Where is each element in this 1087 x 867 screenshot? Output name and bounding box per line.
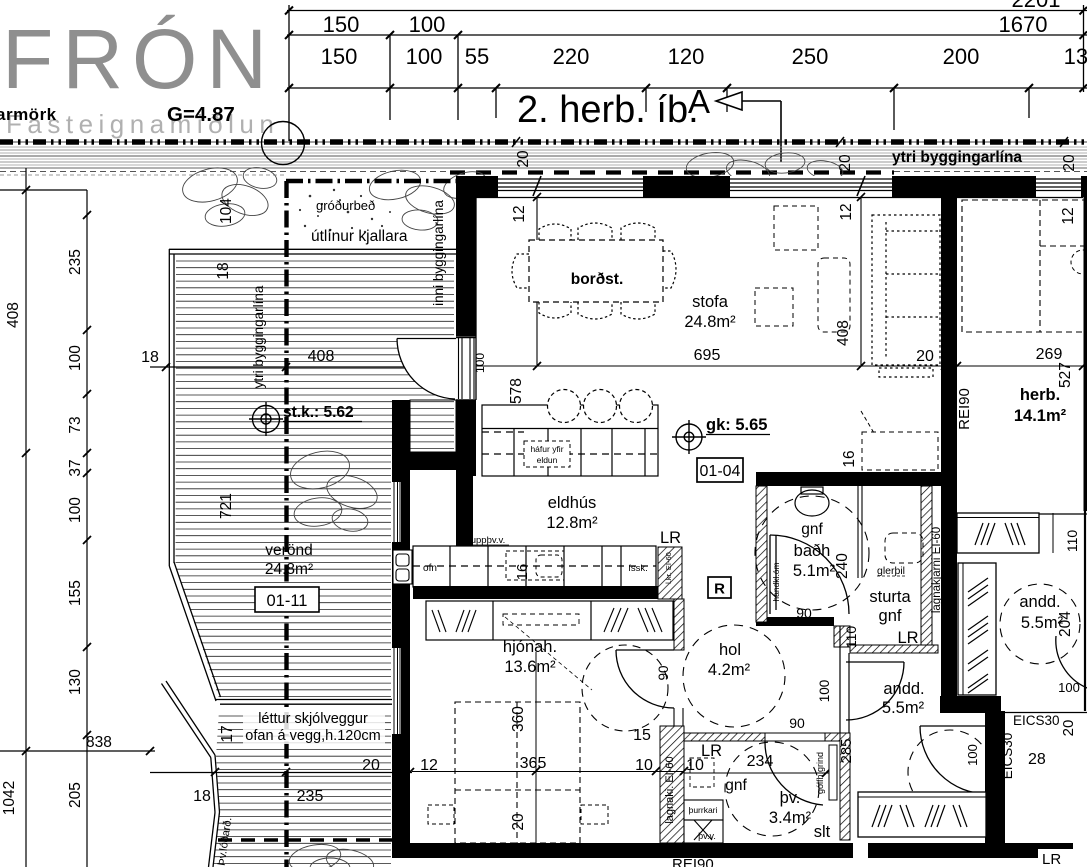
svg-text:17: 17 bbox=[219, 725, 236, 742]
svg-text:110: 110 bbox=[843, 626, 859, 649]
svg-text:12: 12 bbox=[838, 203, 855, 220]
svg-text:14.1m²: 14.1m² bbox=[1014, 407, 1067, 425]
svg-text:100: 100 bbox=[965, 744, 980, 766]
svg-text:10: 10 bbox=[635, 757, 653, 774]
svg-text:gólfh.grind: gólfh.grind bbox=[815, 752, 825, 794]
svg-text:þurrkari: þurrkari bbox=[689, 805, 718, 815]
svg-text:uppþv.v.: uppþv.v. bbox=[471, 535, 506, 546]
svg-text:hol: hol bbox=[719, 641, 741, 659]
svg-text:lagnakjarni EI-60: lagnakjarni EI-60 bbox=[931, 527, 943, 613]
svg-text:100: 100 bbox=[817, 680, 832, 703]
svg-text:EICS30: EICS30 bbox=[1000, 733, 1015, 780]
svg-text:stofa: stofa bbox=[692, 293, 729, 311]
svg-text:695: 695 bbox=[694, 347, 721, 364]
svg-text:R: R bbox=[714, 581, 725, 598]
svg-text:EICS30: EICS30 bbox=[1013, 713, 1060, 728]
svg-text:2. herb. íb.: 2. herb. íb. bbox=[517, 89, 699, 131]
svg-text:G=4.87: G=4.87 bbox=[167, 103, 235, 126]
svg-text:527: 527 bbox=[1057, 362, 1074, 388]
svg-text:verönd: verönd bbox=[265, 542, 312, 559]
svg-text:269: 269 bbox=[1036, 346, 1063, 363]
svg-text:glerþil: glerþil bbox=[877, 565, 905, 577]
svg-text:ytri byggingarlína: ytri byggingarlína bbox=[892, 149, 1022, 166]
svg-text:408: 408 bbox=[308, 348, 335, 365]
svg-text:13.6m²: 13.6m² bbox=[504, 658, 556, 676]
svg-text:REI90: REI90 bbox=[956, 388, 973, 430]
svg-text:01-11: 01-11 bbox=[267, 592, 308, 610]
svg-text:20: 20 bbox=[515, 150, 532, 168]
svg-text:360: 360 bbox=[510, 706, 527, 732]
svg-text:90: 90 bbox=[796, 605, 812, 621]
svg-text:365: 365 bbox=[520, 755, 547, 772]
svg-text:armörk: armörk bbox=[0, 105, 57, 124]
svg-text:110: 110 bbox=[1064, 530, 1080, 553]
svg-text:721: 721 bbox=[218, 493, 235, 519]
svg-text:andd.: andd. bbox=[1019, 593, 1060, 611]
svg-text:205: 205 bbox=[67, 782, 84, 808]
svg-text:20: 20 bbox=[1060, 720, 1077, 737]
svg-text:408: 408 bbox=[5, 302, 22, 328]
svg-text:240: 240 bbox=[834, 553, 851, 579]
svg-text:háfur yfir: háfur yfir bbox=[530, 444, 563, 454]
svg-text:FRÓN: FRÓN bbox=[2, 12, 267, 106]
svg-text:130: 130 bbox=[1064, 44, 1087, 69]
svg-text:90: 90 bbox=[656, 665, 671, 680]
svg-text:250: 250 bbox=[792, 44, 829, 69]
svg-text:18: 18 bbox=[141, 349, 159, 366]
svg-text:200: 200 bbox=[943, 44, 980, 69]
svg-text:285: 285 bbox=[838, 738, 855, 763]
svg-text:5.1m²: 5.1m² bbox=[793, 562, 836, 580]
svg-text:16: 16 bbox=[841, 450, 858, 467]
svg-text:12: 12 bbox=[1060, 207, 1077, 224]
svg-text:eldhús: eldhús bbox=[548, 494, 597, 512]
svg-text:gnf: gnf bbox=[801, 521, 823, 538]
svg-text:þv.v.: þv.v. bbox=[698, 831, 716, 841]
svg-text:20: 20 bbox=[837, 154, 854, 172]
svg-text:220: 220 bbox=[553, 44, 590, 69]
svg-text:l.kr. EI-60: l.kr. EI-60 bbox=[664, 552, 673, 584]
svg-text:150: 150 bbox=[323, 12, 360, 37]
svg-text:235: 235 bbox=[67, 249, 84, 275]
svg-text:120: 120 bbox=[668, 44, 705, 69]
svg-text:1670: 1670 bbox=[999, 12, 1048, 37]
svg-text:LR: LR bbox=[897, 629, 918, 647]
svg-text:100: 100 bbox=[409, 12, 446, 37]
svg-text:ytri byggingarlína: ytri byggingarlína bbox=[251, 285, 266, 388]
svg-text:73: 73 bbox=[67, 416, 84, 433]
svg-text:155: 155 bbox=[67, 580, 84, 606]
svg-text:gróðurbeð: gróðurbeð bbox=[316, 198, 375, 213]
svg-text:12.8m²: 12.8m² bbox=[546, 514, 598, 532]
svg-text:100: 100 bbox=[1058, 680, 1080, 695]
svg-text:104: 104 bbox=[218, 198, 235, 224]
svg-text:15: 15 bbox=[633, 727, 651, 744]
svg-text:24.8m²: 24.8m² bbox=[265, 561, 313, 578]
svg-text:handkl.óm: handkl.óm bbox=[771, 562, 781, 601]
svg-text:A: A bbox=[688, 83, 710, 120]
svg-text:1042: 1042 bbox=[1, 781, 18, 815]
svg-text:90: 90 bbox=[789, 715, 805, 731]
svg-text:130: 130 bbox=[67, 669, 84, 695]
svg-text:inni byggingarlína: inni byggingarlína bbox=[431, 200, 446, 306]
svg-text:ofn: ofn bbox=[423, 563, 437, 574]
svg-text:herb.: herb. bbox=[1020, 386, 1060, 404]
svg-text:20: 20 bbox=[362, 757, 380, 774]
svg-text:borðst.: borðst. bbox=[571, 271, 624, 288]
svg-text:gnf: gnf bbox=[725, 777, 747, 794]
svg-text:204: 204 bbox=[1057, 611, 1074, 637]
svg-text:andd.: andd. bbox=[883, 680, 924, 698]
svg-text:55: 55 bbox=[465, 44, 489, 69]
svg-text:20: 20 bbox=[1061, 154, 1078, 172]
svg-text:24.8m²: 24.8m² bbox=[684, 313, 736, 331]
svg-text:20: 20 bbox=[510, 813, 527, 831]
svg-text:100: 100 bbox=[406, 44, 443, 69]
svg-text:18: 18 bbox=[193, 788, 211, 805]
svg-text:hjónah.: hjónah. bbox=[503, 638, 557, 656]
svg-text:íssk.: íssk. bbox=[628, 563, 648, 574]
svg-text:léttur skjólveggur: léttur skjólveggur bbox=[258, 711, 368, 727]
svg-text:2201: 2201 bbox=[1012, 0, 1061, 12]
svg-text:útlínur kjallara: útlínur kjallara bbox=[311, 228, 408, 245]
svg-text:28: 28 bbox=[1028, 751, 1046, 768]
svg-text:4.2m²: 4.2m² bbox=[708, 661, 751, 679]
svg-text:12: 12 bbox=[511, 205, 528, 222]
svg-text:LR: LR bbox=[701, 742, 722, 760]
svg-text:REI90: REI90 bbox=[672, 856, 714, 867]
svg-text:ofan á vegg,h.120cm: ofan á vegg,h.120cm bbox=[245, 728, 380, 744]
svg-text:408: 408 bbox=[835, 320, 852, 346]
svg-text:18: 18 bbox=[215, 262, 232, 279]
svg-text:sturta: sturta bbox=[869, 588, 911, 606]
svg-text:gnf: gnf bbox=[879, 607, 902, 625]
svg-text:578: 578 bbox=[508, 378, 525, 404]
svg-text:eldun: eldun bbox=[537, 455, 558, 465]
svg-text:01-04: 01-04 bbox=[700, 463, 741, 480]
svg-text:slt: slt bbox=[814, 823, 831, 841]
svg-text:838: 838 bbox=[86, 734, 112, 751]
svg-text:LR: LR bbox=[1042, 851, 1061, 867]
svg-text:LR: LR bbox=[660, 529, 681, 547]
svg-text:16: 16 bbox=[514, 564, 531, 581]
svg-text:3.4m²: 3.4m² bbox=[769, 809, 812, 827]
svg-text:150: 150 bbox=[321, 44, 358, 69]
svg-text:st.k.: 5.62: st.k.: 5.62 bbox=[283, 404, 354, 421]
svg-text:37: 37 bbox=[67, 459, 84, 476]
svg-text:100: 100 bbox=[67, 497, 84, 523]
svg-text:100: 100 bbox=[67, 345, 84, 371]
svg-text:20: 20 bbox=[916, 348, 934, 365]
svg-text:gk: 5.65: gk: 5.65 bbox=[706, 416, 767, 434]
svg-text:lagnaki. EI-60: lagnaki. EI-60 bbox=[664, 756, 676, 823]
